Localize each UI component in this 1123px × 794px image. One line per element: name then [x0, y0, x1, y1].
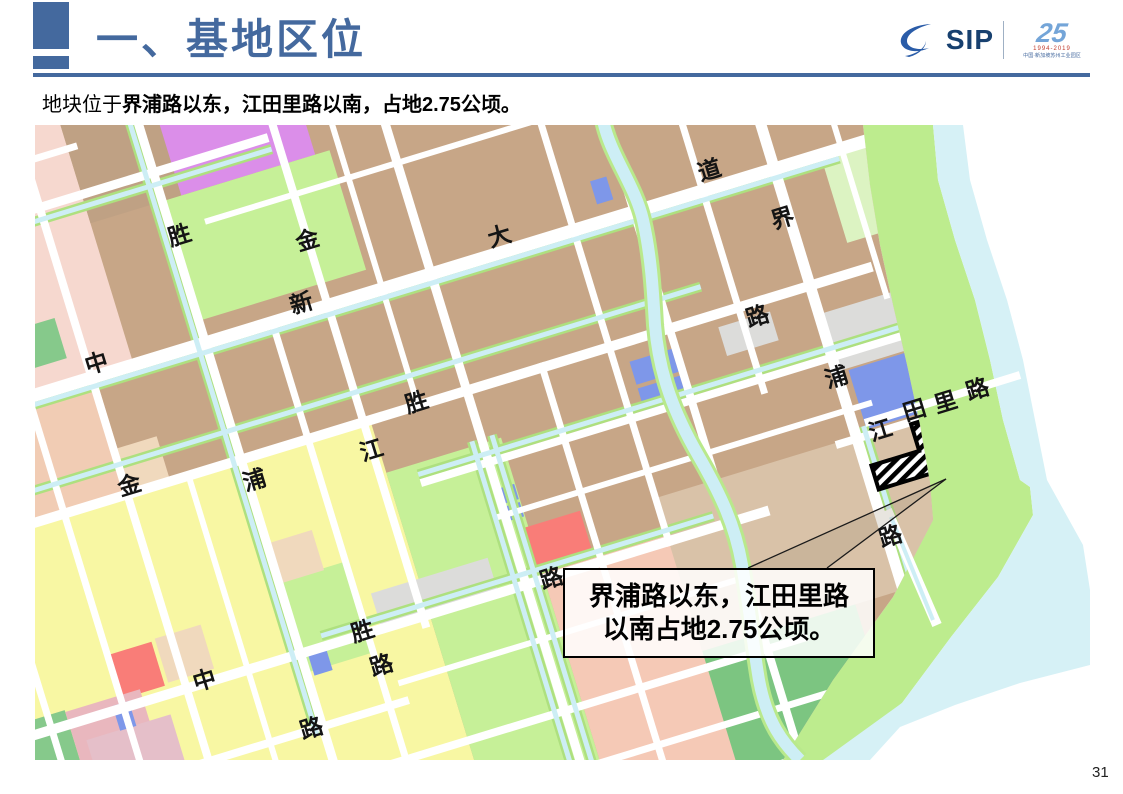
sip-logo: SIP 25 1994-2019 中国·新加坡苏州工业园区	[895, 14, 1091, 66]
subtitle-prefix: 地块位于	[42, 94, 122, 116]
zoning-map-svg: 道大新中胜浦路金江金胜路界浦路江田里路胜路中路	[35, 125, 1090, 760]
header-rule	[33, 73, 1090, 77]
sip-wordmark: SIP	[946, 24, 994, 56]
anniversary-number: 25	[1035, 20, 1069, 46]
sip-swoosh-icon	[895, 20, 937, 60]
header-accent-square	[33, 2, 69, 49]
logo-divider	[1003, 21, 1004, 59]
page-number: 31	[1092, 764, 1109, 781]
page-title: 一、基地区位	[96, 6, 366, 67]
header-accent-bar	[33, 56, 69, 69]
site-callout: 界浦路以东，江田里路 以南占地2.75公顷。	[563, 568, 875, 658]
site-map: 道大新中胜浦路金江金胜路界浦路江田里路胜路中路	[35, 125, 1090, 760]
callout-line1: 界浦路以东，江田里路	[589, 580, 849, 613]
slide: 一、基地区位 SIP 25 1994-2019 中国·新加坡苏州工业园区 地块位…	[0, 0, 1123, 794]
subtitle-emphasis: 界浦路以东，江田里路以南，占地2.75公顷。	[122, 94, 521, 116]
subtitle: 地块位于界浦路以东，江田里路以南，占地2.75公顷。	[42, 88, 521, 117]
callout-line2: 以南占地2.75公顷。	[603, 613, 836, 646]
anniversary-caption: 中国·新加坡苏州工业园区	[1023, 54, 1081, 60]
anniversary-logo: 25 1994-2019 中国·新加坡苏州工业园区	[1013, 20, 1091, 60]
